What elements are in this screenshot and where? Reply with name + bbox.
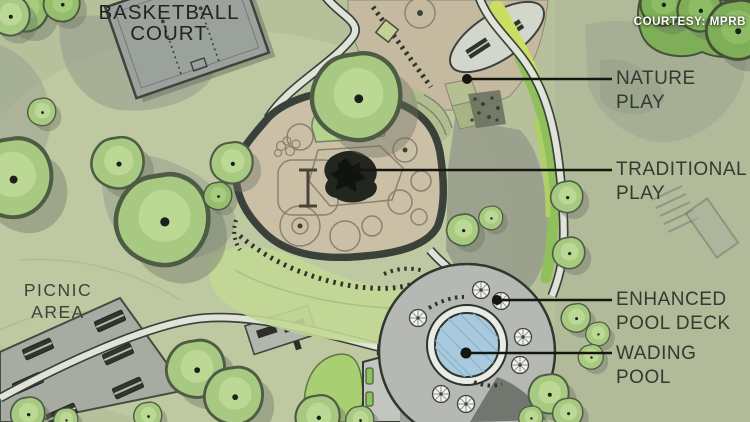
callout-label-enhanced-pool-deck: ENHANCED POOL DECK (616, 288, 744, 336)
courtesy-badge: COURTESY: MPRB (634, 16, 746, 28)
picnic-area-label: PICNIC AREA (8, 279, 108, 323)
park-site-plan: BASKETBALL COURT PICNIC AREA NATURE PLAY… (0, 0, 750, 422)
callout-label-wading-pool: WADING POOL (616, 342, 716, 390)
callout-label-nature-play: NATURE PLAY (616, 67, 750, 115)
basketball-court-label: BASKETBALL COURT (83, 2, 255, 44)
wading-pool-water (435, 313, 499, 377)
callout-label-traditional-play: TRADITIONAL PLAY (616, 158, 750, 206)
